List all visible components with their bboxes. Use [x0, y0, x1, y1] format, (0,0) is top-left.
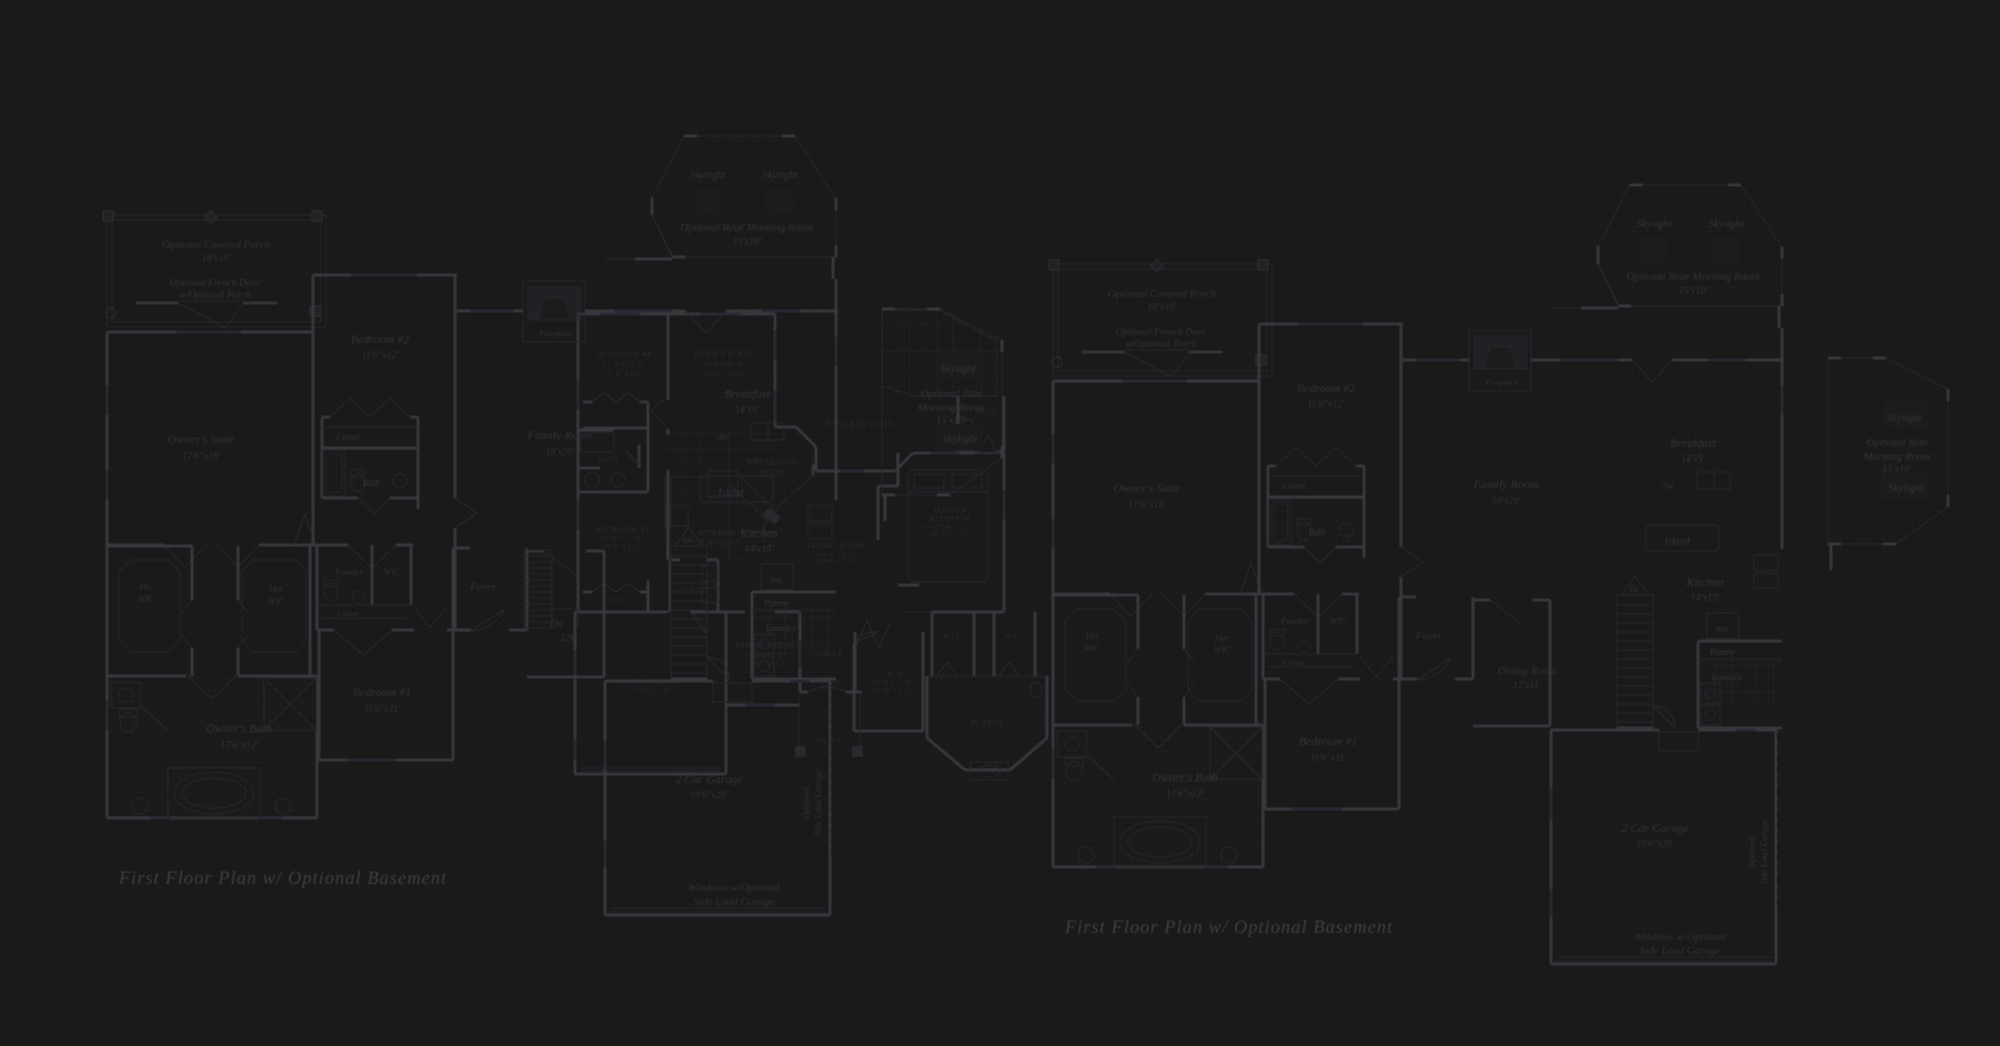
svg-text:12'x11': 12'x11' [1513, 680, 1542, 691]
svg-text:14'x9': 14'x9' [735, 405, 760, 416]
svg-text:Closet: Closet [337, 608, 359, 618]
svg-text:(9'-0" CLG): (9'-0" CLG) [874, 687, 913, 695]
svg-text:Optional: Optional [801, 787, 811, 820]
svg-text:Side Load Garage: Side Load Garage [813, 770, 823, 836]
svg-text:15'x10': 15'x10' [733, 237, 763, 248]
svg-text:W.I.C.: W.I.C. [1005, 632, 1026, 640]
svg-text:10'-0"x11'-0": 10'-0"x11'-0" [872, 679, 914, 687]
svg-text:Skylight: Skylight [942, 433, 978, 445]
svg-text:(9'-0" TRAY CLG): (9'-0" TRAY CLG) [922, 524, 978, 531]
svg-text:Dn: Dn [682, 536, 693, 545]
svg-text:DEN: DEN [884, 669, 902, 678]
svg-text:Breakfast: Breakfast [724, 387, 770, 401]
svg-text:18'x20': 18'x20' [546, 447, 576, 458]
svg-text:Laundry: Laundry [765, 623, 797, 633]
svg-text:Owner's Bath: Owner's Bath [206, 721, 272, 735]
svg-text:M. BATH: M. BATH [971, 719, 1002, 727]
svg-text:Fireplace: Fireplace [539, 328, 573, 338]
svg-text:Island: Island [718, 488, 745, 499]
svg-text:BATH: BATH [598, 456, 618, 464]
svg-text:WIC: WIC [268, 596, 285, 606]
svg-text:WIC: WIC [384, 567, 401, 577]
svg-text:Optional Rear Morning Room: Optional Rear Morning Room [681, 222, 814, 234]
svg-text:Owner's Suite: Owner's Suite [168, 432, 236, 446]
svg-text:12'-0"x11'-0": 12'-0"x11'-0" [601, 535, 643, 543]
svg-text:Morning Room: Morning Room [917, 402, 985, 414]
svg-text:BEDROOM #4: BEDROOM #4 [597, 350, 651, 359]
svg-text:Bedroom #2: Bedroom #2 [351, 332, 410, 346]
svg-text:Bath: Bath [363, 478, 380, 488]
svg-text:19'-6"x21'-6": 19'-6"x21'-6" [629, 687, 672, 695]
svg-text:Optional Side: Optional Side [921, 388, 982, 400]
svg-text:Powder: Powder [334, 567, 363, 577]
svg-text:Optional Covered Porch: Optional Covered Porch [162, 239, 270, 251]
svg-text:11'6"x12': 11'6"x12' [361, 350, 399, 361]
svg-text:17'6"x12': 17'6"x12' [220, 740, 259, 751]
svg-text:Pantry: Pantry [763, 598, 789, 608]
svg-text:w/Optional Porch: w/Optional Porch [179, 290, 251, 301]
svg-text:(9'-0" CLG): (9'-0" CLG) [603, 543, 642, 551]
svg-text:16'-0"x13'-6": 16'-0"x13'-6" [930, 531, 970, 538]
svg-text:Skylight: Skylight [690, 169, 726, 181]
svg-text:BEDROOM: BEDROOM [930, 514, 970, 523]
svg-text:Windows w/Optional: Windows w/Optional [688, 882, 780, 894]
svg-text:Kitchen: Kitchen [739, 526, 777, 540]
svg-text:2 Car Garage: 2 Car Garage [675, 772, 743, 786]
svg-text:18'x10': 18'x10' [202, 253, 232, 264]
svg-text:UTILITY: UTILITY [679, 586, 709, 594]
svg-text:Family Room: Family Room [527, 428, 593, 442]
svg-text:Side Load Garage: Side Load Garage [694, 896, 775, 908]
svg-text:WIC: WIC [138, 594, 155, 604]
svg-text:Optional French Door: Optional French Door [170, 278, 260, 289]
svg-text:(9'-0" CLG): (9'-0" CLG) [605, 370, 644, 378]
svg-text:Bedroom #1: Bedroom #1 [353, 685, 412, 699]
svg-text:Dn: Dn [549, 619, 562, 630]
svg-text:Dining Room: Dining Room [1497, 665, 1557, 677]
svg-text:17'6"x18': 17'6"x18' [182, 451, 221, 462]
svg-text:His: His [139, 582, 153, 592]
svg-text:Closet: Closet [336, 432, 360, 442]
svg-text:11'6"x11': 11'6"x11' [364, 704, 401, 715]
svg-text:15'x10': 15'x10' [937, 415, 967, 426]
svg-text:DW: DW [716, 434, 729, 442]
svg-text:12R: 12R [560, 633, 576, 644]
svg-text:Skylight: Skylight [762, 169, 798, 181]
svg-text:Skylight: Skylight [940, 363, 976, 375]
svg-text:W.I.C.: W.I.C. [943, 632, 964, 640]
svg-text:First Floor Plan w/ Optional: First Floor Plan w/ Optional Basement [118, 869, 447, 889]
svg-text:14'x15': 14'x15' [745, 544, 775, 555]
svg-text:11'-0"x12'-0": 11'-0"x12'-0" [603, 361, 645, 369]
svg-text:Her: Her [268, 584, 283, 594]
svg-text:Ref.: Ref. [770, 576, 784, 585]
svg-text:19'6"x20': 19'6"x20' [690, 790, 729, 801]
svg-text:Foyer: Foyer [469, 581, 497, 593]
svg-text:BEDROOM #3: BEDROOM #3 [595, 525, 649, 534]
